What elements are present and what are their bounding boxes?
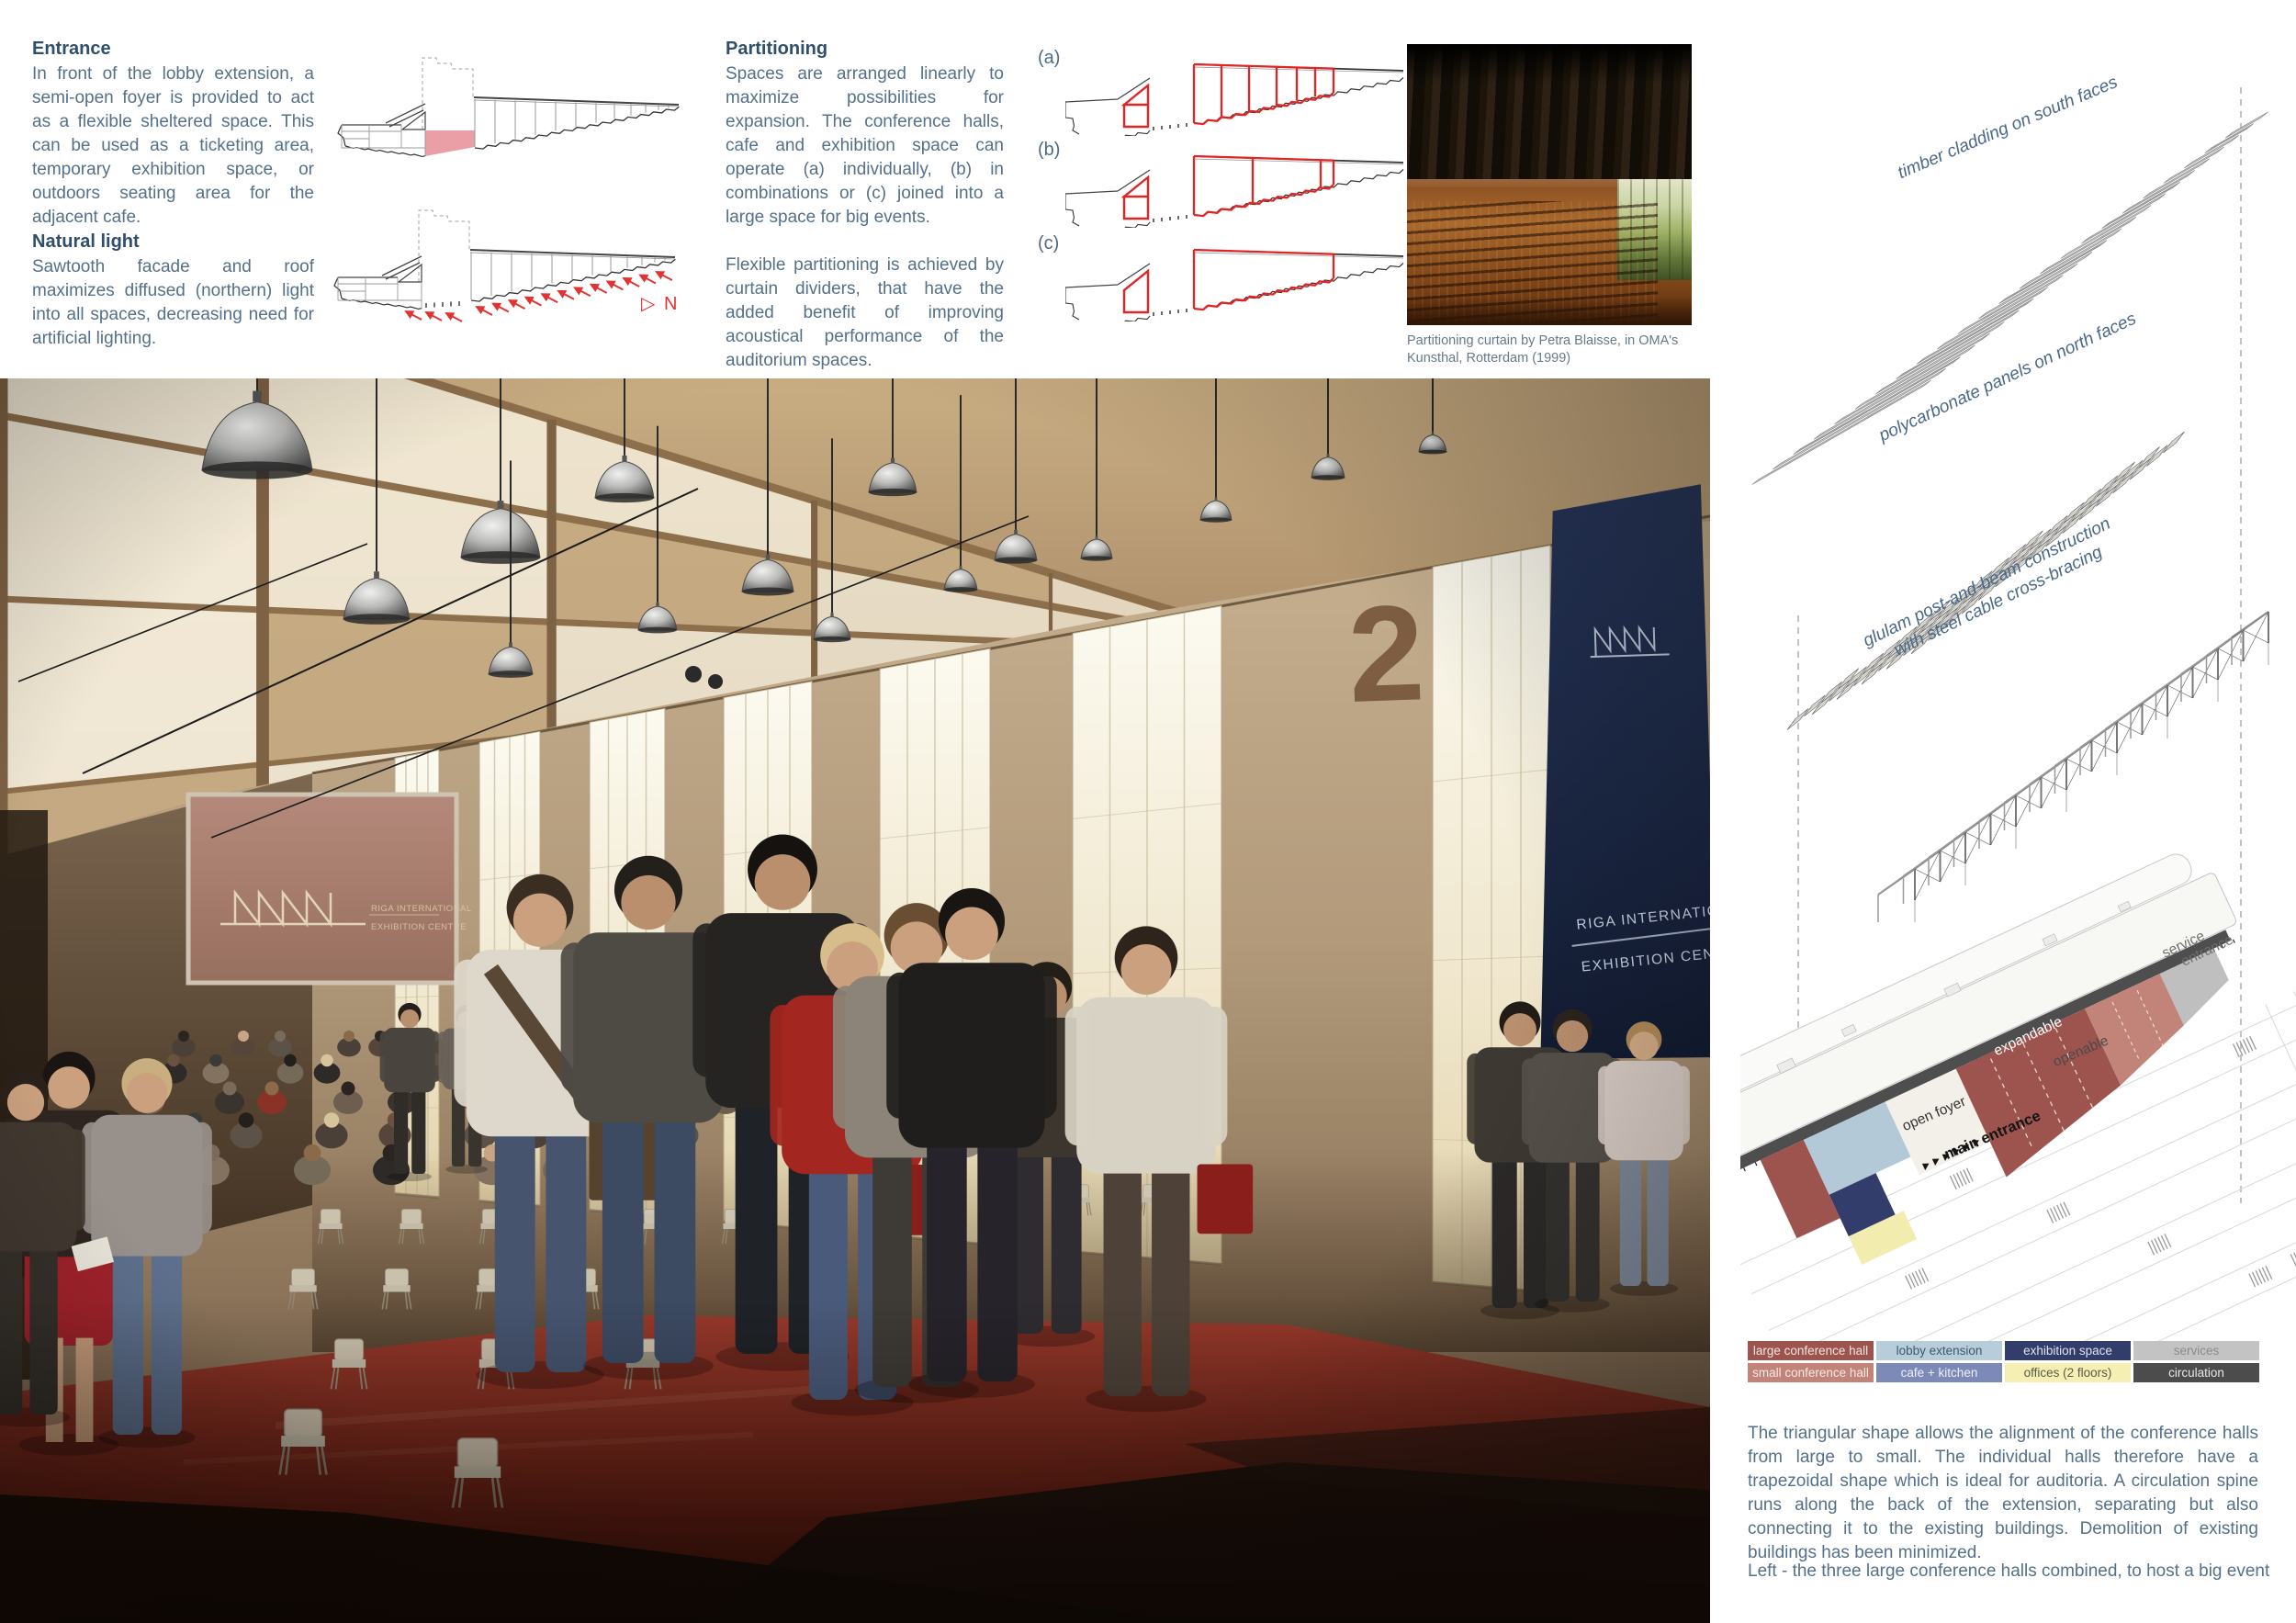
light-arrows	[406, 272, 672, 321]
entrance-title: Entrance	[32, 39, 314, 60]
partition-diagram-b	[1065, 136, 1412, 228]
legend-item: lobby extension	[1876, 1341, 2002, 1360]
legend-item: exhibition space	[2005, 1341, 2131, 1360]
kunsthal-reference-photo	[1407, 44, 1692, 325]
exploded-axonometric	[1740, 28, 2296, 1350]
legend-item: small conference hall	[1748, 1363, 1874, 1382]
legend-item: services	[2133, 1341, 2259, 1360]
natural-light-section: Natural light Sawtooth facade and roof m…	[32, 231, 314, 351]
legend-item: offices (2 floors)	[2005, 1363, 2131, 1382]
render-effects	[0, 378, 1710, 1623]
legend-item: cafe + kitchen	[1876, 1363, 2002, 1382]
kunsthal-caption: Partitioning curtain by Petra Blaisse, i…	[1407, 332, 1683, 367]
north-label: N	[664, 294, 679, 314]
plan-description: The triangular shape allows the alignmen…	[1748, 1422, 2258, 1565]
diagram-label-c: (c)	[1038, 233, 1059, 254]
partition-diagram-a	[1065, 44, 1412, 136]
partitioning-title: Partitioning	[726, 39, 1004, 60]
timber-cladding-layer	[1752, 112, 2268, 485]
site-plan-massing	[1740, 818, 2296, 1350]
legend-item: large conference hall	[1748, 1341, 1874, 1360]
diagram-label-a: (a)	[1038, 48, 1060, 69]
partitioning-body-1: Spaces are arranged linearly to maximize…	[726, 62, 1004, 230]
presentation-board: Entrance In front of the lobby extension…	[0, 0, 2296, 1623]
partitioning-section: Partitioning Spaces are arranged linearl…	[726, 39, 1004, 373]
north-arrow-icon: ▷	[641, 294, 657, 314]
entrance-section: Entrance In front of the lobby extension…	[32, 39, 314, 230]
legend-item: circulation	[2133, 1363, 2259, 1382]
diagram-label-b: (b)	[1038, 140, 1060, 161]
entrance-body: In front of the lobby extension, a semi-…	[32, 62, 314, 230]
section-diagram-entrance	[331, 40, 698, 178]
north-marker: ▷ N	[641, 292, 679, 315]
natural-light-title: Natural light	[32, 231, 314, 253]
bottom-caption: Left - the three large conference halls …	[1748, 1561, 2269, 1582]
partition-diagram-c	[1065, 230, 1412, 321]
conference-hall-render: RIGA INTERNATIONAL EXHIBITION CENTRE RIG…	[0, 378, 1710, 1623]
legend: large conference halllobby extensionexhi…	[1748, 1341, 2259, 1382]
natural-light-body: Sawtooth facade and roof maximizes diffu…	[32, 255, 314, 351]
partitioning-body-2: Flexible partitioning is achieved by cur…	[726, 254, 1004, 373]
